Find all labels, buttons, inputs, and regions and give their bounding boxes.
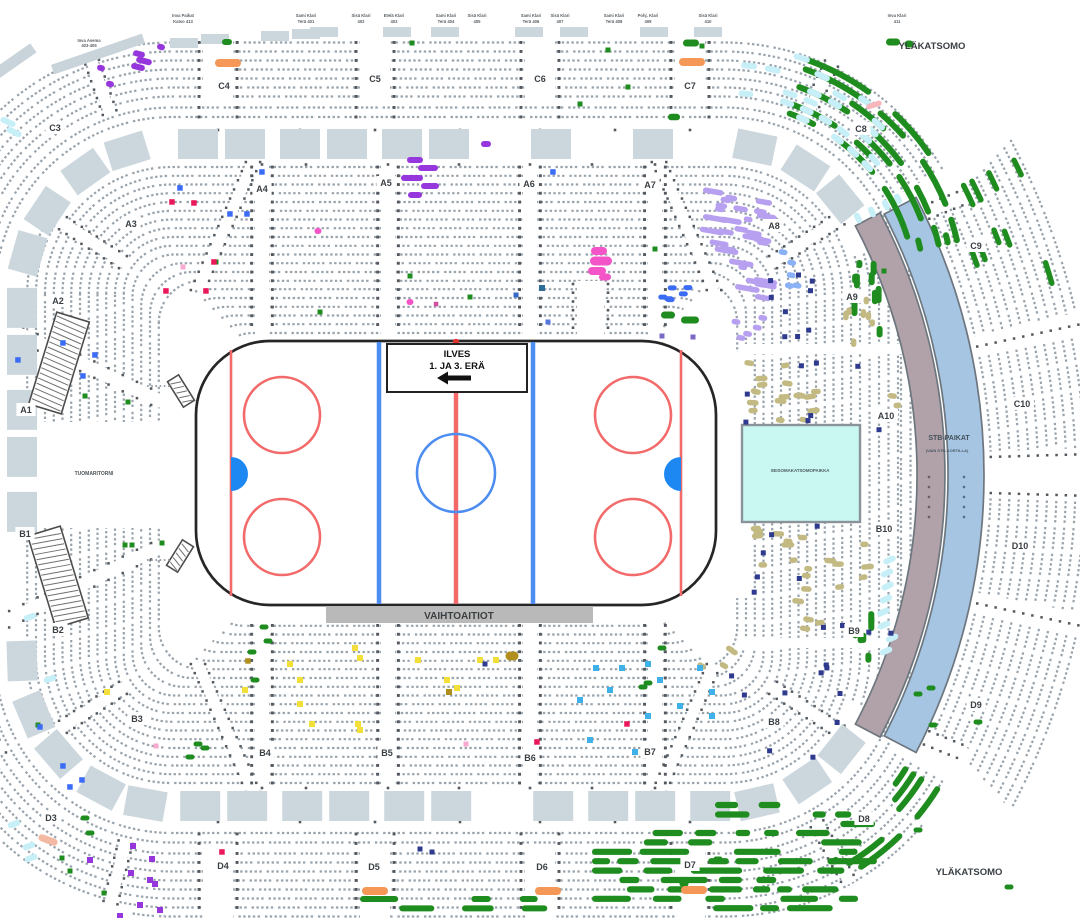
svg-text:405: 405 [474, 19, 482, 24]
svg-text:409: 409 [645, 19, 653, 24]
svg-text:C7: C7 [684, 81, 696, 91]
svg-text:C6: C6 [534, 74, 546, 84]
svg-text:D10: D10 [1012, 541, 1029, 551]
svg-text:B7: B7 [644, 747, 656, 757]
svg-text:Pohj. Klari: Pohj. Klari [638, 13, 659, 18]
svg-text:B6: B6 [524, 753, 536, 763]
svg-text:Sisä Klari: Sisä Klari [698, 13, 717, 18]
svg-text:D4: D4 [217, 861, 229, 871]
svg-text:A7: A7 [644, 180, 656, 190]
svg-text:B3: B3 [131, 714, 143, 724]
svg-text:A3: A3 [125, 219, 137, 229]
svg-text:TUOMARITORNI: TUOMARITORNI [75, 471, 114, 477]
svg-text:Inva Klari: Inva Klari [888, 13, 907, 18]
svg-text:D9: D9 [970, 700, 982, 710]
svg-text:A5: A5 [380, 178, 392, 188]
svg-text:C8: C8 [855, 124, 867, 134]
svg-text:D3: D3 [45, 813, 57, 823]
svg-text:YLÄKATSOMO: YLÄKATSOMO [936, 867, 1003, 878]
svg-text:B4: B4 [259, 748, 271, 758]
svg-text:D6: D6 [536, 862, 548, 872]
svg-text:Sami Klari: Sami Klari [436, 13, 456, 18]
svg-text:Etelä Klari: Etelä Klari [384, 13, 404, 18]
svg-text:407: 407 [557, 19, 565, 24]
svg-text:B2: B2 [52, 625, 64, 635]
svg-text:1. JA 3. ERÄ: 1. JA 3. ERÄ [429, 361, 485, 372]
svg-text:B1: B1 [19, 529, 31, 539]
svg-text:A10: A10 [878, 411, 895, 421]
svg-text:A2: A2 [52, 296, 64, 306]
svg-text:D8: D8 [858, 814, 870, 824]
svg-text:C10: C10 [1014, 399, 1031, 409]
svg-text:Terä 406: Terä 406 [523, 19, 540, 24]
svg-text:403: 403 [391, 19, 399, 24]
svg-text:Terä 408: Terä 408 [606, 19, 623, 24]
svg-text:C4: C4 [218, 81, 230, 91]
svg-text:A1: A1 [20, 405, 32, 415]
svg-text:B5: B5 [381, 748, 393, 758]
svg-text:(VAIN STB-KORTILLA): (VAIN STB-KORTILLA) [926, 448, 969, 453]
svg-text:A4: A4 [256, 184, 268, 194]
svg-text:Terä 404: Terä 404 [438, 19, 455, 24]
svg-text:B9: B9 [848, 626, 860, 636]
svg-text:D5: D5 [368, 862, 380, 872]
svg-text:410: 410 [705, 19, 713, 24]
svg-text:B8: B8 [768, 717, 780, 727]
svg-text:C3: C3 [49, 123, 61, 133]
svg-text:Sami Klari: Sami Klari [604, 13, 624, 18]
svg-text:VAIHTOAITIOT: VAIHTOAITIOT [424, 611, 494, 622]
svg-text:B10: B10 [876, 524, 893, 534]
svg-text:402: 402 [358, 19, 366, 24]
svg-text:Inva Paikat: Inva Paikat [172, 13, 194, 18]
svg-text:ILVES: ILVES [444, 349, 471, 360]
svg-text:Katso 413: Katso 413 [173, 19, 193, 24]
svg-text:Sisä Klari: Sisä Klari [351, 13, 370, 18]
svg-text:Sami Klari: Sami Klari [521, 13, 541, 18]
svg-text:Sisä Klari: Sisä Klari [550, 13, 569, 18]
svg-text:A6: A6 [523, 179, 535, 189]
svg-text:411: 411 [894, 19, 901, 24]
svg-text:D7: D7 [684, 860, 696, 870]
svg-text:Sami Klari: Sami Klari [296, 13, 316, 18]
svg-text:C9: C9 [970, 241, 982, 251]
svg-text:SEISOMAKATSOMOPAIKKA: SEISOMAKATSOMOPAIKKA [771, 468, 831, 473]
svg-text:Terä 401: Terä 401 [298, 19, 315, 24]
svg-text:STB-PAIKAT: STB-PAIKAT [928, 435, 970, 442]
svg-text:403-405: 403-405 [81, 43, 97, 48]
svg-text:A8: A8 [768, 221, 780, 231]
svg-text:YLÄKATSOMO: YLÄKATSOMO [899, 41, 966, 52]
svg-text:C5: C5 [369, 74, 381, 84]
svg-text:Sisä Klari: Sisä Klari [467, 13, 486, 18]
svg-text:A9: A9 [846, 292, 858, 302]
